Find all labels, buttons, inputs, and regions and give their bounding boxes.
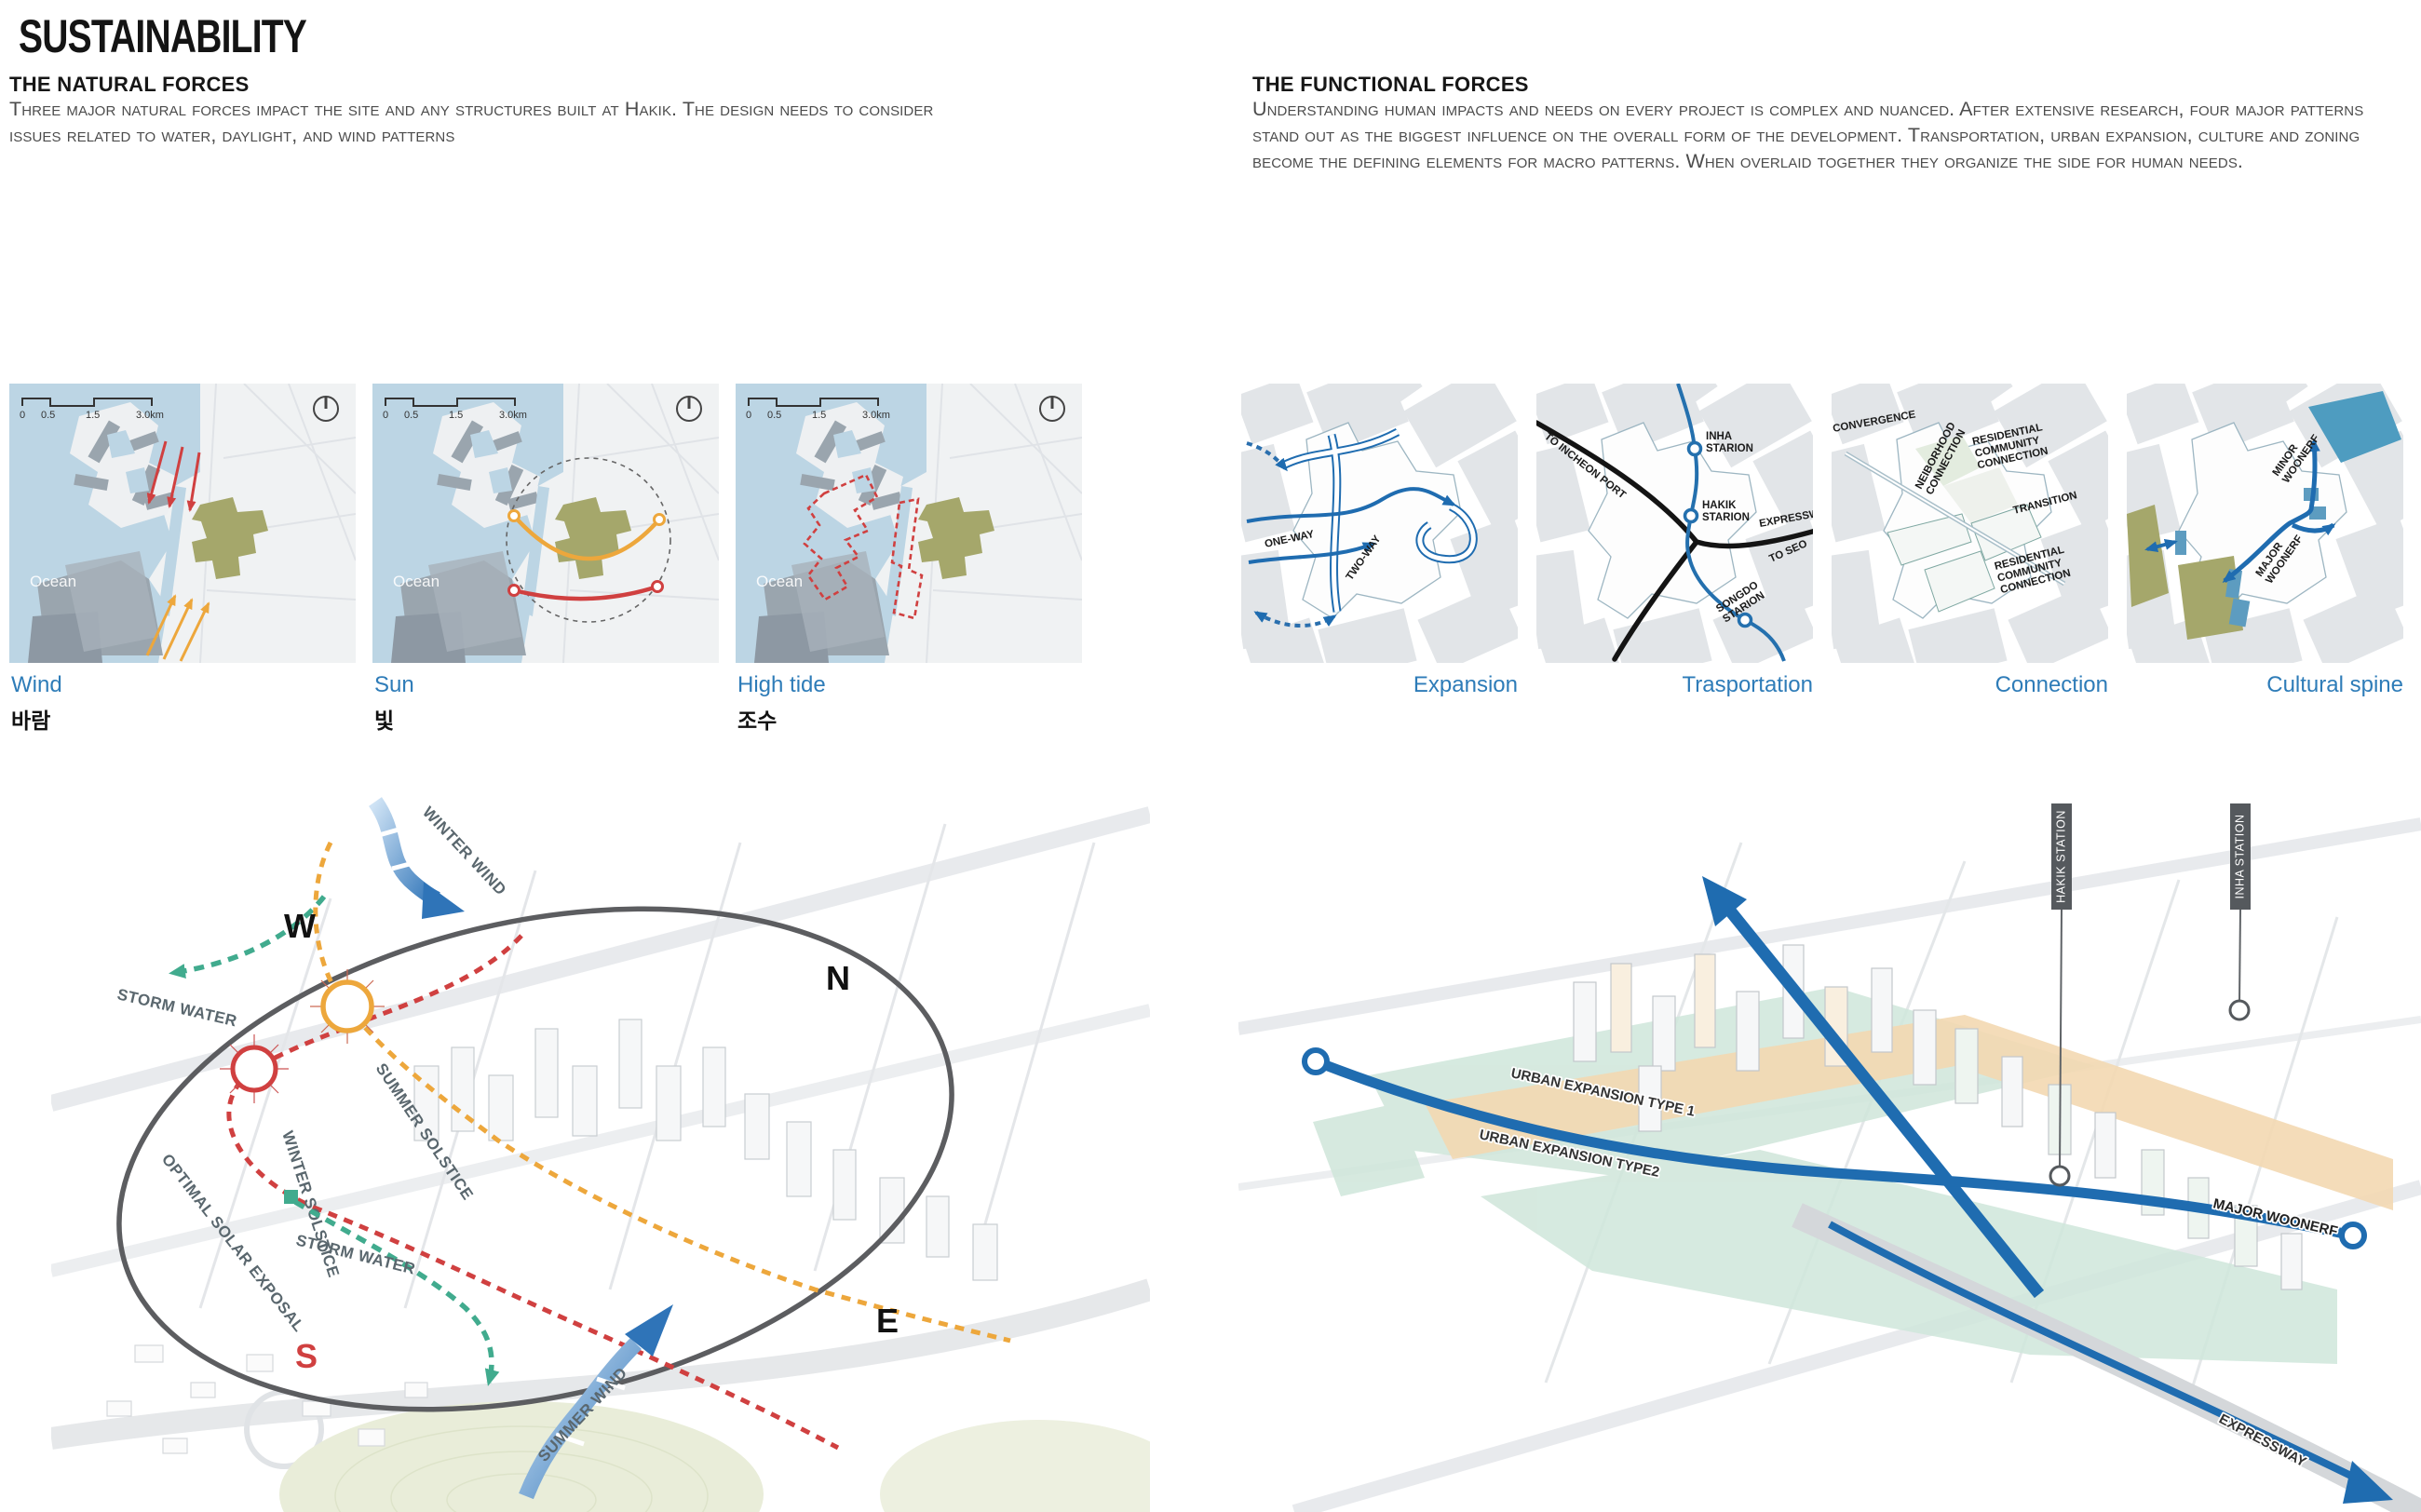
inha-station-flag: INHA STATION	[2230, 803, 2251, 1019]
compass-e: E	[876, 1302, 899, 1340]
cultural-spine-label: Cultural spine	[2127, 672, 2403, 698]
compass-n: N	[826, 959, 850, 997]
functional-forces-body: Understanding human impacts and needs on…	[1252, 97, 2393, 175]
map-tile-cultural-spine: MINOR WOONERF MAJOR WOONERF	[2127, 384, 2403, 663]
natural-forces-body: Three major natural forces impact the si…	[9, 97, 950, 149]
transportation-label: Trasportation	[1536, 672, 1813, 698]
natural-forces-heading: THE NATURAL FORCES	[9, 73, 250, 97]
hakik-station-label: HAKIK STATION	[2054, 810, 2067, 903]
map-tile-connection: CONVERGENCE NEIBORHOOD CONNECTION RESIDE…	[1832, 384, 2108, 663]
expansion-label: Expansion	[1241, 672, 1518, 698]
sun-map-label: Sun	[374, 672, 414, 698]
natural-forces-site-diagram: STORM WATER WINTER SOLSTICE SUMMER SOLST…	[51, 787, 1150, 1512]
page-title: SUSTAINABILITY	[19, 9, 306, 63]
inha-station-label-2: STARION	[1706, 443, 1753, 454]
winter-wind-label: WINTER WIND	[419, 803, 510, 899]
map-tile-wind	[9, 384, 356, 663]
functional-forces-site-diagram: MAJOR WOONERF EXPRESSWAY URBAN EXPANSION…	[1238, 787, 2421, 1512]
hakik-station-label-1: HAKIK	[1702, 500, 1737, 511]
map-tile-sun	[372, 384, 719, 663]
inha-station-label-1: INHA	[1706, 431, 1732, 442]
sun-map-label-kr: 빛	[374, 703, 394, 735]
functional-forces-heading: THE FUNCTIONAL FORCES	[1252, 73, 1529, 97]
map-tile-expansion: ONE-WAY TWO-WAY	[1241, 384, 1518, 663]
hakik-station-label-2: STARION	[1702, 512, 1750, 523]
wind-map-label: Wind	[11, 672, 62, 698]
high-tide-map-label: High tide	[737, 672, 826, 698]
storm-water-bottom-label: STORM WATER	[294, 1231, 417, 1277]
wind-map-label-kr: 바람	[11, 703, 50, 735]
storm-water-top-label: STORM WATER	[115, 985, 238, 1030]
compass-w: W	[284, 907, 316, 945]
summer-sun-icon	[310, 969, 385, 1044]
map-tile-transportation: TO INCHEON PORT INHA STARION HAKIK STARI…	[1536, 384, 1813, 663]
connection-label: Connection	[1832, 672, 2108, 698]
inha-station-label: INHA STATION	[2233, 815, 2246, 899]
winter-sun-icon	[220, 1034, 289, 1103]
winter-wind-arrow	[375, 802, 465, 919]
high-tide-map-label-kr: 조수	[737, 703, 777, 735]
map-tile-high-tide	[736, 384, 1082, 663]
compass-s: S	[295, 1337, 318, 1375]
